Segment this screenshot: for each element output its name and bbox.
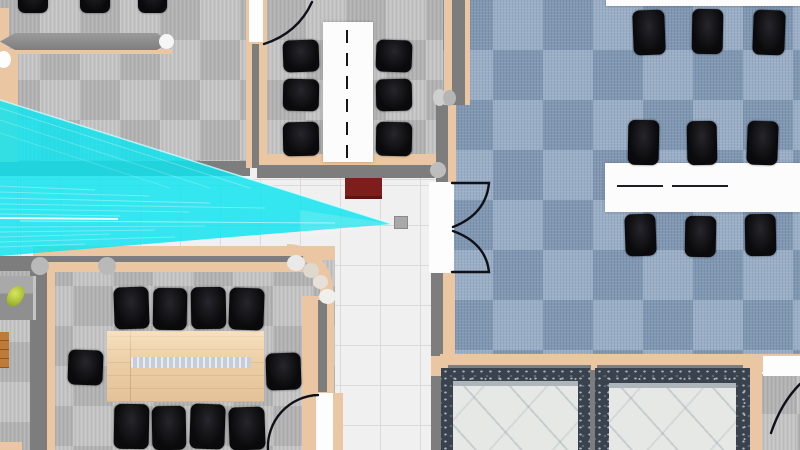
door-arc-meeting-room xyxy=(264,2,312,44)
door-arc-blue-office-bottom xyxy=(452,231,489,272)
floorplan-viewport[interactable] xyxy=(0,0,800,450)
door-arc-conference-room xyxy=(268,395,318,450)
robot-marker xyxy=(394,216,408,229)
lidar-cone xyxy=(0,100,392,256)
door-arc-bottom-right xyxy=(771,384,800,433)
door-arc-blue-office-top xyxy=(452,183,489,227)
